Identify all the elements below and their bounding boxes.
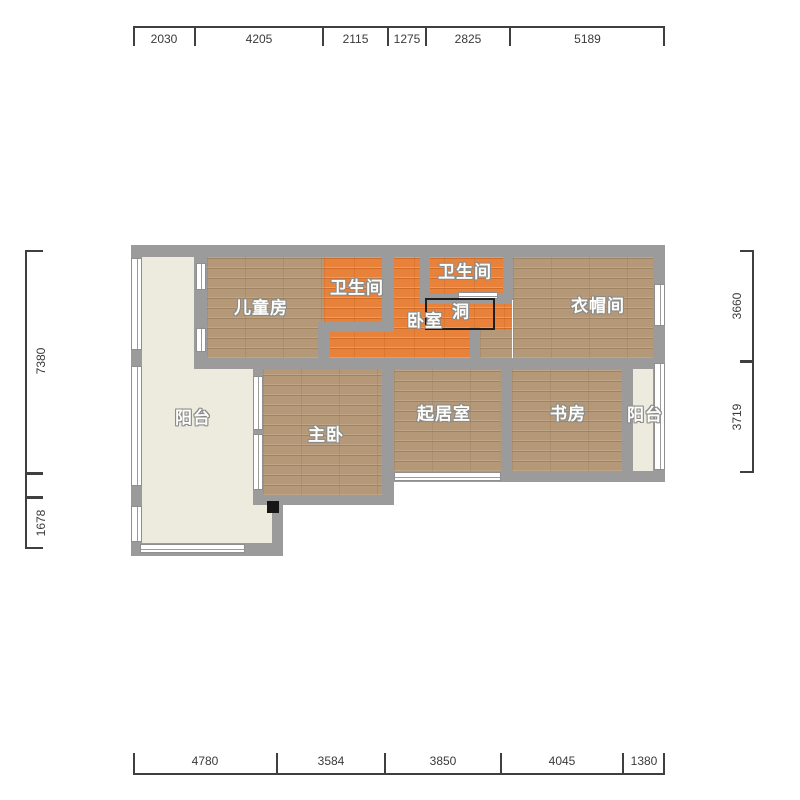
floor-balcony-left <box>142 257 196 543</box>
room-label-living-room: 起居室 <box>417 400 471 425</box>
dim-value: 7380 <box>34 348 48 375</box>
window <box>253 434 263 490</box>
floor-plan-canvas: 2030 4205 2115 1275 2825 5189 4780 3584 … <box>0 0 800 800</box>
dim-value: 1380 <box>623 753 665 769</box>
window <box>196 263 206 290</box>
wall-living-study <box>501 358 512 482</box>
window <box>253 376 263 430</box>
dim-value: 3719 <box>730 404 744 431</box>
dim-value: 3660 <box>730 293 744 320</box>
dim-tick <box>25 547 43 549</box>
dim-value: 3584 <box>277 753 385 769</box>
dim-value: 2115 <box>323 31 388 47</box>
floor-balcony-left <box>196 368 253 543</box>
wall-cloak-left <box>503 245 513 300</box>
dim-value: 4045 <box>501 753 623 769</box>
wall-hole-stub <box>470 327 480 368</box>
dim-value: 4780 <box>133 753 277 769</box>
dim-value: 5189 <box>510 31 665 47</box>
floor-cloakroom-ext <box>480 330 512 358</box>
window <box>394 472 501 481</box>
window <box>131 366 142 486</box>
dim-line <box>25 250 27 549</box>
window <box>196 328 206 352</box>
dim-tick <box>25 250 43 252</box>
wall-master-living <box>382 358 394 505</box>
room-label-cloakroom: 衣帽间 <box>571 292 625 317</box>
dim-value: 3850 <box>385 753 501 769</box>
wall-top <box>131 245 665 257</box>
dim-tick <box>740 471 754 473</box>
window <box>131 258 142 350</box>
room-label-bathroom-right: 卫生间 <box>438 258 492 283</box>
room-label-study: 书房 <box>550 400 586 425</box>
corner-marker <box>267 501 279 513</box>
dim-tick <box>25 472 43 475</box>
dim-tick <box>740 360 754 363</box>
wall-mid-horizontal <box>194 358 665 369</box>
room-label-bedroom: 卧室 <box>407 307 443 332</box>
room-label-balcony-left: 阳台 <box>175 404 211 429</box>
room-label-children-room: 儿童房 <box>234 294 288 319</box>
window <box>654 284 665 326</box>
dim-value: 4205 <box>195 31 323 47</box>
dim-value: 2825 <box>426 31 510 47</box>
room-label-balcony-right: 阳台 <box>627 401 663 426</box>
dim-line <box>133 773 665 775</box>
dim-tick <box>25 496 43 499</box>
room-label-hole: 洞 <box>452 298 470 323</box>
wall-children-stub <box>318 322 330 358</box>
window <box>140 544 245 553</box>
dim-value: 1678 <box>34 510 48 537</box>
room-label-master-bedroom: 主卧 <box>308 421 344 446</box>
dim-tick <box>740 250 754 252</box>
dim-value: 1275 <box>388 31 426 47</box>
dim-line <box>133 26 665 28</box>
window <box>131 506 142 542</box>
dim-value: 2030 <box>133 31 195 47</box>
room-label-bathroom-left: 卫生间 <box>330 274 384 299</box>
